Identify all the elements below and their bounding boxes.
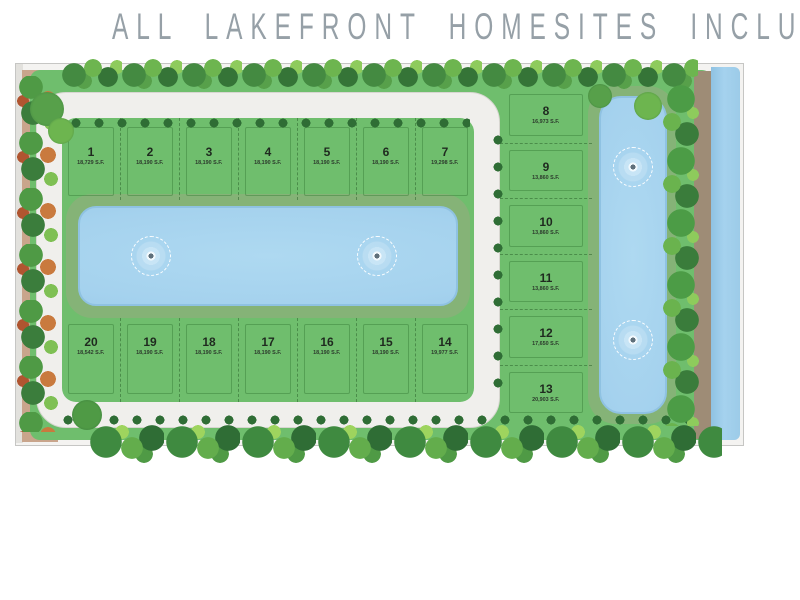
lot-area: 19,977 S.F. — [431, 349, 458, 355]
flyer-title: ALL LAKEFRONT HOMESITES INCLUDED — [112, 6, 688, 48]
tree-icon — [634, 92, 662, 120]
fountain-icon — [613, 320, 653, 360]
lot: 1320,903 S.F. — [500, 366, 592, 421]
lot-building-envelope — [245, 324, 291, 394]
street-trees-north — [70, 117, 470, 129]
lot: 816,973 S.F. — [500, 88, 592, 144]
lot-area: 18,190 S.F. — [254, 159, 281, 165]
lot-area: 20,903 S.F. — [532, 396, 559, 402]
lot-area: 13,860 S.F. — [532, 229, 559, 235]
lot-area: 19,298 S.F. — [431, 159, 458, 165]
street-trees-east-road — [492, 134, 504, 398]
east-canal-water — [711, 67, 740, 440]
lot: 1113,860 S.F. — [500, 255, 592, 311]
east-lake — [599, 96, 667, 414]
lot: 418,190 S.F. — [239, 118, 298, 200]
tree-belt-south — [88, 424, 722, 466]
fountain-icon — [613, 147, 653, 187]
lot-area: 18,190 S.F. — [136, 159, 163, 165]
lot-building-envelope — [363, 324, 409, 394]
lot: 318,190 S.F. — [180, 118, 239, 200]
lot-area: 18,190 S.F. — [313, 349, 340, 355]
lot-building-envelope — [422, 324, 468, 394]
lot: 1918,190 S.F. — [121, 318, 180, 402]
lot-area: 18,190 S.F. — [372, 159, 399, 165]
lot-area: 18,190 S.F. — [195, 349, 222, 355]
lot-building-envelope — [509, 205, 583, 247]
tree-icon — [48, 118, 74, 144]
fountain-icon — [357, 236, 397, 276]
lot-area: 13,860 S.F. — [532, 285, 559, 291]
lot: 1419,977 S.F. — [416, 318, 474, 402]
tree-icon — [588, 84, 612, 108]
tree-icon — [72, 400, 102, 430]
lot-building-envelope — [186, 324, 232, 394]
lot-building-envelope — [304, 324, 350, 394]
fountain-icon — [131, 236, 171, 276]
lot-area: 13,860 S.F. — [532, 174, 559, 180]
lot: 1718,190 S.F. — [239, 318, 298, 402]
lot: 1217,650 S.F. — [500, 310, 592, 366]
lot: 1818,190 S.F. — [180, 318, 239, 402]
lot-area: 18,190 S.F. — [136, 349, 163, 355]
site-plan-flyer: ALL LAKEFRONT HOMESITES INCLUDED 118,729… — [0, 0, 800, 600]
lot-building-envelope — [127, 324, 173, 394]
lot: 719,298 S.F. — [416, 118, 474, 200]
lot: 1618,190 S.F. — [298, 318, 357, 402]
main-lake — [78, 206, 458, 306]
lot-area: 18,729 S.F. — [77, 159, 104, 165]
lot: 618,190 S.F. — [357, 118, 416, 200]
lot-building-envelope — [509, 94, 583, 136]
lot-area: 18,542 S.F. — [77, 349, 104, 355]
lot-building-envelope — [509, 261, 583, 303]
lot-area: 18,190 S.F. — [313, 159, 340, 165]
lot: 1518,190 S.F. — [357, 318, 416, 402]
lot-building-envelope — [509, 372, 583, 414]
lot-row-north: 118,729 S.F.218,190 S.F.318,190 S.F.418,… — [62, 118, 474, 200]
lot-building-envelope — [509, 316, 583, 358]
lot: 218,190 S.F. — [121, 118, 180, 200]
lot: 913,860 S.F. — [500, 144, 592, 200]
lot-area: 17,650 S.F. — [532, 340, 559, 346]
lot-building-envelope — [509, 150, 583, 192]
lot: 1013,860 S.F. — [500, 199, 592, 255]
lot-area: 18,190 S.F. — [254, 349, 281, 355]
lot-column-east: 816,973 S.F.913,860 S.F.1013,860 S.F.111… — [500, 88, 592, 420]
lot-building-envelope — [68, 324, 114, 394]
lot: 518,190 S.F. — [298, 118, 357, 200]
tree-belt-east — [660, 84, 702, 426]
lot-area: 18,190 S.F. — [195, 159, 222, 165]
lot: 2018,542 S.F. — [62, 318, 121, 402]
lot-area: 18,190 S.F. — [372, 349, 399, 355]
lot-area: 16,973 S.F. — [532, 118, 559, 124]
lot-row-south: 2018,542 S.F.1918,190 S.F.1818,190 S.F.1… — [62, 318, 474, 402]
